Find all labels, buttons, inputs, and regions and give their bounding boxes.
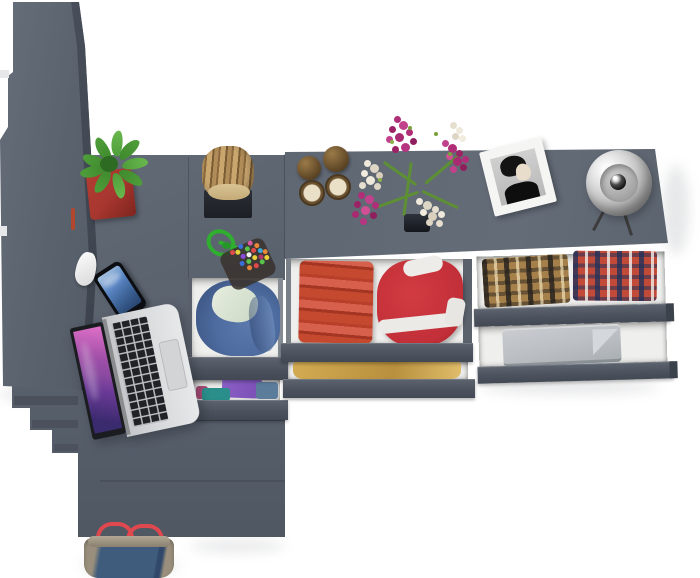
folded-steelblue — [256, 382, 278, 399]
cord-knot — [222, 242, 231, 249]
potted-plant — [78, 136, 142, 226]
linen-fold-corner — [592, 329, 619, 360]
red-towel-stack — [298, 260, 373, 343]
bead-keychain — [202, 224, 274, 284]
plant-center — [100, 156, 118, 172]
hourglass-lid — [297, 156, 321, 180]
wardrobe-handle-notch — [0, 226, 7, 236]
log-cut-face — [208, 184, 250, 200]
hourglasses — [295, 144, 353, 214]
flower-vase — [404, 214, 430, 232]
framed-photo — [490, 148, 546, 206]
hourglass-lid — [323, 146, 349, 172]
flower-cluster-magenta — [358, 192, 365, 199]
step-riser — [32, 420, 78, 428]
flower-cluster-white — [364, 160, 371, 167]
step-riser — [14, 396, 78, 405]
plaid-shirt-brown — [482, 254, 571, 308]
portrait-face — [515, 163, 531, 181]
drawer-front — [283, 379, 475, 398]
hourglass-bulb — [325, 174, 351, 200]
flower-cluster-magenta — [442, 140, 449, 147]
drawer-front — [281, 343, 473, 362]
portrait-shoulders — [503, 179, 541, 206]
scene — [0, 0, 700, 578]
flower-cluster-white — [416, 198, 423, 205]
dresser-right-column — [472, 243, 678, 385]
drawer-side-rail — [188, 278, 192, 358]
log-decor — [202, 146, 254, 220]
drawer-end-cap — [669, 361, 677, 378]
flower-buds-green — [408, 126, 412, 130]
flower-stem — [377, 191, 419, 209]
drawer-front — [186, 357, 288, 380]
plaid-shirt-red — [573, 251, 657, 302]
drawer-front — [189, 400, 288, 420]
drawer-end-cap — [666, 303, 674, 321]
drawer-side-rail — [286, 259, 291, 344]
flower-stem — [421, 190, 459, 210]
flower-bouquet — [350, 112, 482, 238]
desk-seam — [188, 157, 189, 279]
bag-rim — [88, 536, 170, 547]
flower-stem — [424, 154, 460, 185]
red-object-sliver — [71, 208, 75, 230]
wardrobe-handle-notch — [0, 70, 9, 78]
step-riser — [54, 444, 78, 451]
floor-shadow — [190, 540, 285, 552]
step-riser — [100, 480, 285, 482]
handbag — [84, 522, 174, 578]
lamp-hub-glint — [613, 176, 617, 180]
flower-stem — [402, 162, 412, 216]
hourglass-bulb — [299, 180, 325, 206]
flower-cluster-magenta — [394, 116, 401, 123]
desk-lamp — [584, 148, 658, 232]
desk-dresser-seam — [284, 154, 285, 258]
flower-cluster-white — [450, 122, 457, 129]
